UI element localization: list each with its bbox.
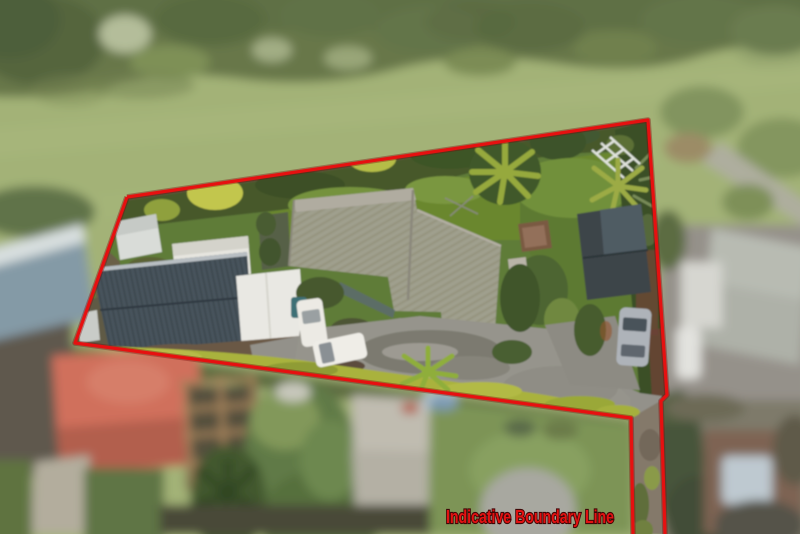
- svg-text:Indicative Boundary Line: Indicative Boundary Line: [446, 506, 614, 527]
